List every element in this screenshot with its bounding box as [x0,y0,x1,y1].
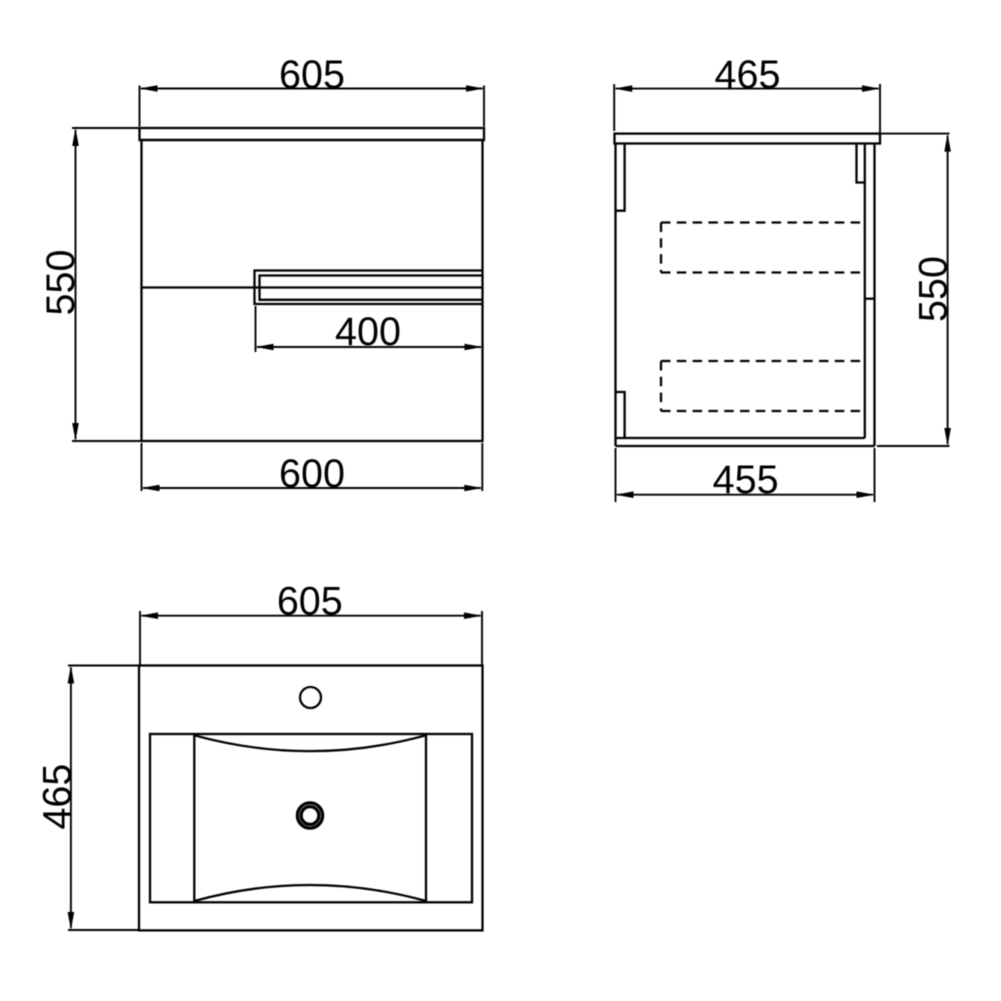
svg-text:455: 455 [713,458,779,502]
svg-text:600: 600 [279,452,345,496]
svg-text:465: 465 [715,53,781,97]
svg-text:605: 605 [277,580,343,624]
svg-text:605: 605 [279,53,345,97]
svg-text:400: 400 [335,310,401,354]
svg-text:550: 550 [912,256,956,322]
svg-text:550: 550 [39,250,83,316]
svg-text:465: 465 [36,764,80,830]
